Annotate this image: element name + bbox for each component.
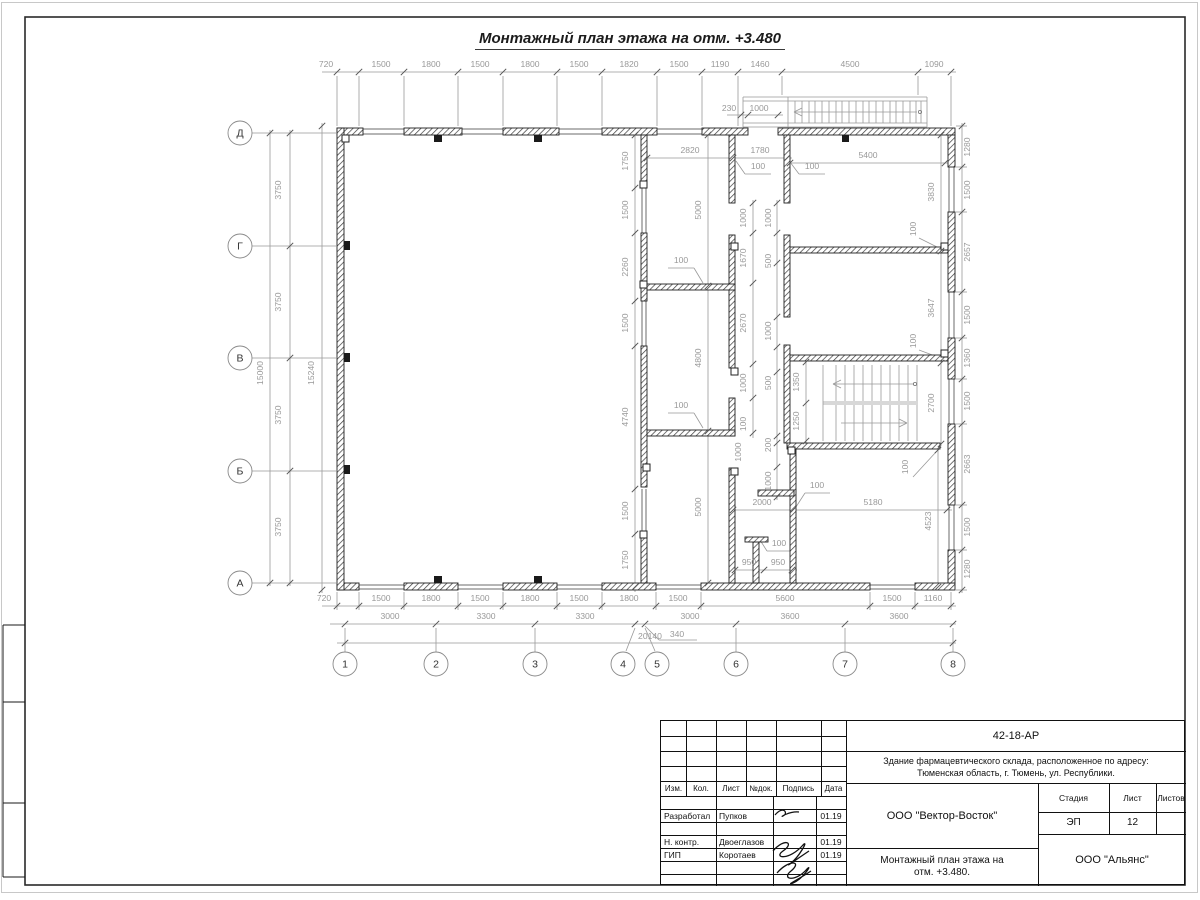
wall	[915, 583, 955, 590]
dim-label: 200	[763, 438, 773, 453]
dim-label: 100	[738, 417, 748, 432]
dim-label: 5000	[693, 497, 703, 516]
tb-name-ncontrol: Двоеглазов	[716, 835, 773, 848]
tb-role-gip: ГИП	[661, 848, 716, 861]
axis-label: 1	[342, 659, 348, 671]
wall	[503, 128, 559, 135]
dim-label: 1780	[750, 145, 769, 155]
tb-role-ncontrol: Н. контр.	[661, 835, 716, 848]
dim-label: 1800	[520, 593, 539, 603]
thin-line	[833, 384, 841, 388]
dim-label: 1500	[470, 593, 489, 603]
dim-label: 1000	[763, 208, 773, 227]
dim-label: 3830	[926, 182, 936, 201]
signatures	[769, 799, 819, 886]
column-square	[342, 135, 349, 142]
axis-label: А	[236, 578, 243, 590]
axis-label: 6	[733, 659, 739, 671]
dim-label: 100	[805, 161, 820, 171]
dim-label: 1500	[620, 200, 630, 219]
wall	[602, 583, 656, 590]
dim-label: 1500	[962, 517, 972, 536]
dim-label: 1800	[421, 593, 440, 603]
tb-col-data: Дата	[821, 781, 846, 796]
dim-label: 1500	[620, 313, 630, 332]
wall	[778, 128, 955, 135]
dim-label: 2260	[620, 257, 630, 276]
wall	[948, 424, 955, 505]
dim-label: 1090	[924, 59, 943, 69]
wall	[729, 235, 735, 368]
column-square	[941, 243, 948, 250]
dim-label: 1800	[421, 59, 440, 69]
dim-label: 3647	[926, 298, 936, 317]
dim-label: 3750	[273, 180, 283, 199]
wall	[948, 338, 955, 379]
wall	[337, 128, 344, 590]
column-square	[640, 281, 647, 288]
dim-label: 2700	[926, 393, 936, 412]
dim-label: 1500	[569, 59, 588, 69]
dim-label: 1160	[924, 593, 943, 603]
dim-label: 100	[751, 161, 766, 171]
wall	[790, 355, 948, 361]
wall	[647, 430, 735, 436]
tb-date-gip: 01.19	[816, 848, 846, 861]
tb-role-developer: Разработал	[661, 809, 716, 822]
column-square	[941, 350, 948, 357]
side-stamp	[3, 625, 25, 877]
dim-label: 1500	[962, 305, 972, 324]
tb-sheets-label: Листов	[1156, 783, 1186, 812]
dim-label: 100	[810, 480, 825, 490]
pilaster	[344, 241, 350, 250]
wall	[745, 537, 768, 542]
tb-name-developer: Пупков	[716, 809, 773, 822]
axis-label: Г	[237, 241, 243, 253]
wall	[784, 235, 790, 317]
dim-label: 950	[742, 557, 757, 567]
dim-label: 1500	[371, 59, 390, 69]
thin-line	[913, 452, 936, 477]
axis-label: Д	[236, 128, 243, 140]
dim-label: 950	[771, 557, 786, 567]
dim-label: 1000	[733, 442, 743, 461]
tb-stage-value: ЭП	[1038, 812, 1109, 834]
tb-name-gip: Коротаев	[716, 848, 773, 861]
wall	[948, 212, 955, 292]
dim-label: 4740	[620, 407, 630, 426]
dim-label: 1750	[620, 151, 630, 170]
dim-label: 20140	[638, 631, 662, 641]
dim-label: 1280	[962, 559, 972, 578]
dim-label: 15000	[255, 361, 265, 385]
dim-label: 1250	[791, 411, 801, 430]
thin-line	[899, 419, 907, 423]
dim-label: 1800	[520, 59, 539, 69]
dim-label: 100	[908, 334, 918, 349]
wall	[404, 583, 458, 590]
dim-label: 1500	[962, 180, 972, 199]
pilaster	[842, 135, 849, 142]
wall	[503, 583, 557, 590]
wall	[641, 233, 647, 301]
wall	[948, 135, 955, 167]
dim-label: 1500	[882, 593, 901, 603]
tb-company: ООО "Альянс"	[1038, 834, 1186, 886]
dim-label: 500	[763, 254, 773, 269]
pilaster	[534, 135, 542, 142]
dim-label: 340	[670, 629, 685, 639]
tb-col-podpis: Подпись	[776, 781, 821, 796]
dim-label: 1500	[669, 59, 688, 69]
dim-label: 3000	[380, 611, 399, 621]
column-square	[640, 531, 647, 538]
thin-line	[694, 413, 703, 428]
wall	[404, 128, 462, 135]
column-square	[731, 468, 738, 475]
column-square	[731, 368, 738, 375]
axis-label: 2	[433, 659, 439, 671]
thin-line	[833, 380, 841, 384]
dim-label: 3000	[680, 611, 699, 621]
dim-label: 15240	[306, 361, 316, 385]
dim-label: 1000	[763, 471, 773, 490]
thin-line	[899, 423, 907, 427]
dim-label: 100	[900, 460, 910, 475]
tb-sheet-label: Лист	[1109, 783, 1156, 812]
signature-ncontrol	[773, 843, 809, 865]
dim-label: 1360	[962, 348, 972, 367]
dim-label: 2663	[962, 454, 972, 473]
wall	[787, 443, 940, 449]
tb-date-ncontrol: 01.19	[816, 835, 846, 848]
axis-label: В	[236, 353, 243, 365]
dimension-labels: 7201500180015001800150018201500119014604…	[255, 59, 972, 641]
tb-plan-line2: отм. +3.480.	[914, 867, 970, 879]
axis-label: 8	[950, 659, 956, 671]
dim-label: 3750	[273, 405, 283, 424]
dim-label: 1500	[620, 501, 630, 520]
axis-label: 3	[532, 659, 538, 671]
dim-label: 4800	[693, 348, 703, 367]
dim-label: 3750	[273, 517, 283, 536]
dim-label: 5000	[693, 200, 703, 219]
pilaster	[344, 465, 350, 474]
dim-label: 1500	[569, 593, 588, 603]
dim-label: 1460	[750, 59, 769, 69]
dim-label: 2657	[962, 242, 972, 261]
wall	[790, 445, 796, 583]
wall	[701, 583, 870, 590]
thin-line	[694, 268, 703, 283]
dim-label: 1500	[371, 593, 390, 603]
dim-label: 100	[908, 222, 918, 237]
dim-label: 1190	[711, 59, 730, 69]
axis-label: 5	[654, 659, 660, 671]
dim-label: 1500	[470, 59, 489, 69]
dim-label: 5600	[775, 593, 794, 603]
dim-label: 3600	[889, 611, 908, 621]
dim-label: 1000	[738, 373, 748, 392]
dim-label: 3600	[780, 611, 799, 621]
tb-col-list: Лист	[716, 781, 746, 796]
thin-line	[736, 161, 745, 174]
dim-label: 1800	[619, 593, 638, 603]
signature-developer	[775, 810, 799, 816]
tb-date-developer: 01.19	[816, 809, 846, 822]
dim-label: 3300	[476, 611, 495, 621]
dim-label: 1280	[962, 137, 972, 156]
thin-line	[790, 162, 799, 174]
dim-label: 1350	[791, 372, 801, 391]
pilaster	[434, 135, 442, 142]
tb-col-ndok: №док.	[746, 781, 776, 796]
tb-col-izm: Изм.	[661, 781, 686, 796]
thin-line	[626, 628, 635, 651]
dim-label: 1820	[619, 59, 638, 69]
tb-col-kol: Кол.	[686, 781, 716, 796]
wall	[790, 247, 948, 253]
wall	[641, 135, 647, 188]
wall	[948, 550, 955, 583]
axis-label: 7	[842, 659, 848, 671]
column-square	[731, 243, 738, 250]
column-square	[788, 447, 795, 454]
dim-label: 1500	[962, 391, 972, 410]
dim-label: 1000	[749, 103, 768, 113]
column-square	[643, 464, 650, 471]
wall	[647, 284, 735, 290]
axis-label: 4	[620, 659, 626, 671]
dim-label: 3300	[575, 611, 594, 621]
tb-project-line2: Тюменская область, г. Тюмень, ул. Респуб…	[917, 767, 1115, 779]
dim-label: 1500	[668, 593, 687, 603]
dim-label: 1670	[738, 248, 748, 267]
dim-label: 1000	[738, 208, 748, 227]
tb-project-line1: Здание фармацевтического склада, располо…	[883, 755, 1149, 767]
signature-gip	[777, 863, 811, 884]
dim-label: 720	[319, 59, 334, 69]
pilaster	[534, 576, 542, 583]
title-block: Изм. Кол. Лист №док. Подпись Дата Разраб…	[660, 720, 1185, 885]
dim-label: 5180	[863, 497, 882, 507]
column-square	[640, 181, 647, 188]
wall	[784, 345, 790, 443]
dim-label: 4500	[840, 59, 859, 69]
pilaster	[344, 353, 350, 362]
wall	[784, 135, 790, 203]
tb-org: ООО "Вектор-Восток"	[846, 783, 1038, 848]
drawing-title: Монтажный план этажа на отм. +3.480	[320, 30, 940, 47]
tb-sheet-value: 12	[1109, 812, 1156, 834]
dim-label: 100	[674, 255, 689, 265]
dim-label: 1000	[763, 321, 773, 340]
drawing-sheet: 7201500180015001800150018201500119014604…	[0, 0, 1200, 900]
dim-label: 5400	[858, 150, 877, 160]
dim-label: 1750	[620, 550, 630, 569]
axis-label: Б	[237, 466, 244, 478]
tb-doc-number: 42-18-АР	[846, 721, 1186, 751]
dim-label: 3750	[273, 292, 283, 311]
wall	[602, 128, 657, 135]
dim-label: 2000	[752, 497, 771, 507]
dim-label: 2820	[680, 145, 699, 155]
wall	[729, 135, 735, 203]
dim-label: 2670	[738, 313, 748, 332]
drawing-title-text: Монтажный план этажа на отм. +3.480	[475, 30, 785, 50]
dim-label: 100	[674, 400, 689, 410]
dim-label: 500	[763, 376, 773, 391]
wall	[641, 533, 647, 583]
wall	[729, 468, 735, 583]
tb-stage-label: Стадия	[1038, 783, 1109, 812]
dim-label: 100	[772, 538, 787, 548]
pilaster	[434, 576, 442, 583]
dim-label: 230	[722, 103, 737, 113]
dim-label: 720	[317, 593, 332, 603]
dim-label: 4523	[923, 511, 933, 530]
tb-plan-line1: Монтажный план этажа на	[880, 855, 1003, 867]
